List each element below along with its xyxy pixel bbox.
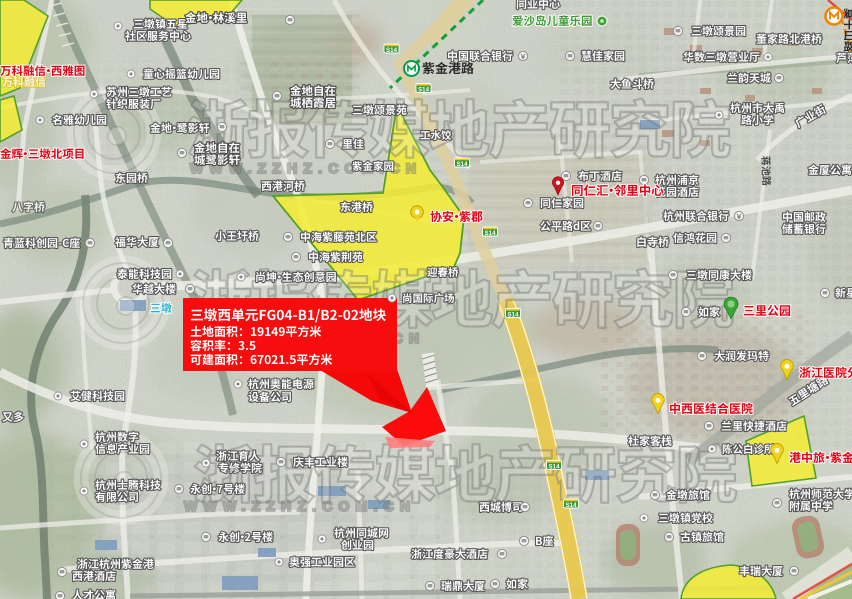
svg-text:WWW.ZZHZ.COM.CN: WWW.ZZHZ.COM.CN: [184, 498, 416, 514]
